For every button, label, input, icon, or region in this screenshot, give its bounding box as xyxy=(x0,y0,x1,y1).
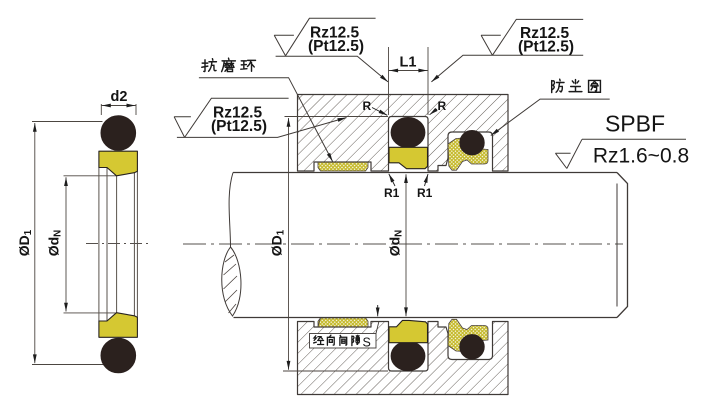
svg-text:R1: R1 xyxy=(417,186,433,200)
svg-text:SPBF: SPBF xyxy=(605,111,665,137)
svg-text:L1: L1 xyxy=(400,55,417,71)
svg-text:R1: R1 xyxy=(384,186,400,200)
svg-text:(Pt12.5): (Pt12.5) xyxy=(211,118,267,135)
svg-text:Rz1.6~0.8: Rz1.6~0.8 xyxy=(593,145,689,168)
svg-text:(Pt12.5): (Pt12.5) xyxy=(308,38,364,55)
svg-text:R: R xyxy=(363,99,372,113)
svg-text:(Pt12.5): (Pt12.5) xyxy=(518,39,574,56)
svg-text:R: R xyxy=(438,99,447,113)
svg-text:S: S xyxy=(363,336,371,350)
svg-text:d2: d2 xyxy=(111,89,128,105)
